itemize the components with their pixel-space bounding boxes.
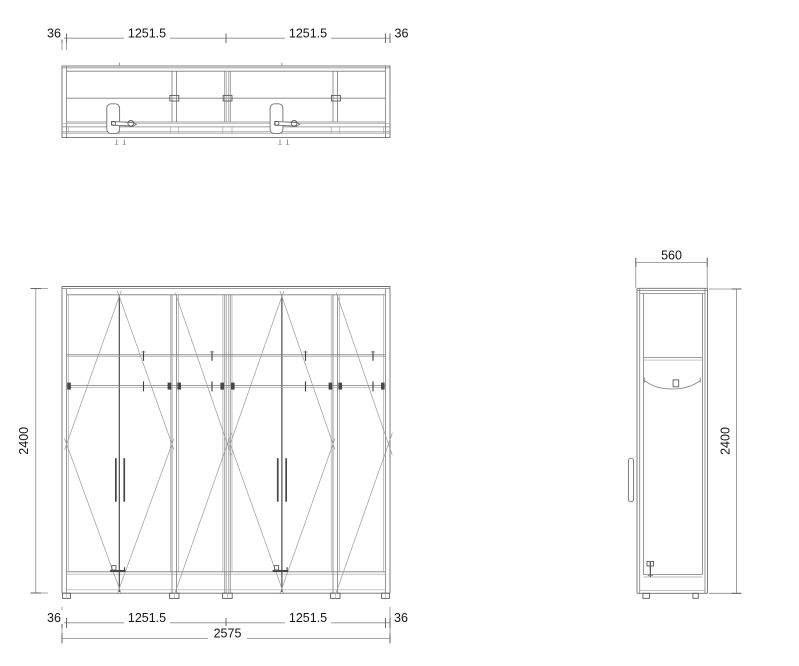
plan-lock-fitting-right [270,104,300,145]
front-dim-module-2: 1251.5 [289,611,327,625]
side-depth-dimension: 560 [636,249,707,289]
side-dim-height: 2400 [719,427,733,455]
front-dim-module-1: 1251.5 [128,611,166,625]
plan-dim-module-2: 1251.5 [289,27,327,41]
front-door-handles [115,458,287,502]
side-view: 560 [628,249,741,599]
side-door-handle [628,458,633,502]
front-feet [63,593,390,598]
front-dim-height: 2400 [17,427,31,455]
side-rail-bracket [645,378,701,389]
side-dim-depth: 560 [661,249,682,263]
front-door-edges [68,295,383,592]
front-dividers [172,295,338,593]
plan-dim-left-panel: 36 [47,27,61,41]
plan-dimension-row: 36 1251.5 1251.5 36 [44,26,408,51]
front-dim-left-panel: 36 [47,611,61,625]
plan-view: 36 1251.5 1251.5 36 [44,26,408,145]
side-carcass [637,288,708,593]
front-height-dimension: 2400 [17,289,48,593]
plan-dividers [170,71,341,122]
wardrobe-drawing-svg: 36 1251.5 1251.5 36 [0,0,799,666]
plan-dim-module-1: 1251.5 [128,27,166,41]
front-dim-total-width: 2575 [214,626,242,640]
plan-lock-fitting-left [107,104,137,145]
side-height-dimension: 2400 [709,289,742,593]
front-bottom-dimensions: 36 1251.5 1251.5 36 2575 [44,607,408,644]
front-dim-right-panel: 36 [394,611,408,625]
front-view: 2400 36 1251.5 1251.5 36 2575 [17,287,408,644]
drawing-sheet: 36 1251.5 1251.5 36 [0,0,799,666]
plan-dim-right-panel: 36 [395,27,409,41]
side-feet [643,593,698,598]
